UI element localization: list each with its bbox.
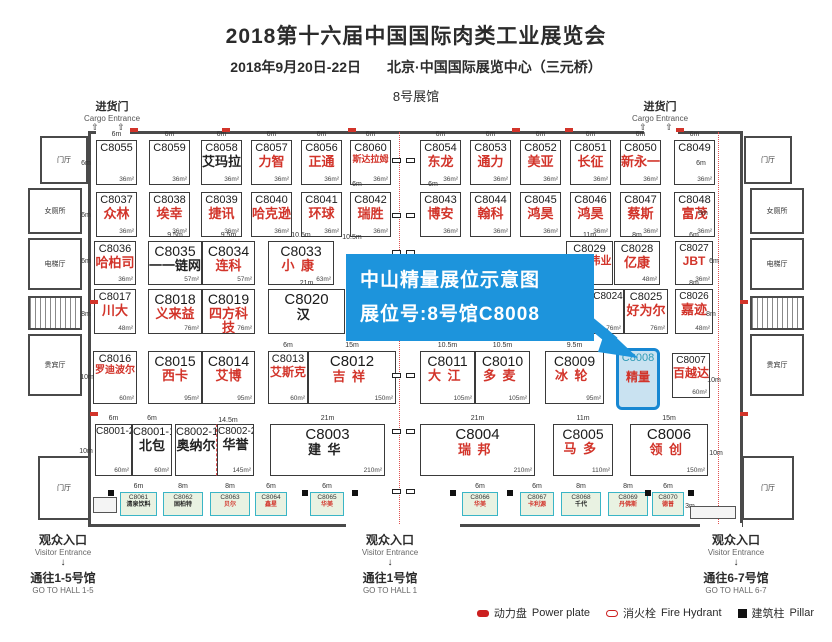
booth-name: 斯达拉姆 (351, 155, 390, 164)
legend-label-cn: 建筑柱 (752, 605, 785, 621)
cargo-entrance: 进货门Cargo Entrance⇧ ⇧ (605, 98, 715, 132)
dimension-label: 6m (475, 483, 485, 490)
booth-area: 60m² (692, 389, 707, 396)
booth-id: C8050 (621, 141, 660, 155)
dimension-label: 15m (345, 342, 359, 349)
booth-id: C8019 (203, 290, 254, 307)
booth-C8005: C8005马多110m² (553, 424, 613, 476)
expansion-joint-line (718, 132, 719, 524)
booth-area: 36m² (373, 176, 388, 183)
booth-id: C8027 (676, 242, 712, 255)
booth-name: 固柏特 (164, 502, 202, 509)
booth-name: 埃幸 (150, 207, 189, 221)
booth-id: C8040 (252, 193, 291, 207)
booth-name: 华美 (463, 502, 497, 509)
room: 门厅 (38, 456, 90, 520)
room: 女厕所 (750, 188, 804, 234)
room: 女厕所 (28, 188, 82, 234)
exit-destination-en: GO TO HALL 6-7 (676, 586, 796, 595)
booth-area: 36m² (274, 228, 289, 235)
booth-id: C8066 (463, 493, 497, 502)
booth-area: 63m² (316, 276, 331, 283)
utility-room (690, 506, 736, 519)
visitor-entrance-label-cn: 观众入口 (676, 531, 796, 548)
dimension-label: 6m (283, 342, 293, 349)
booth-area: 36m² (172, 176, 187, 183)
booth-C8046: C8046鸿昊36m² (570, 192, 611, 237)
dimension-label: 8m (576, 483, 586, 490)
dimension-label: 6m (134, 483, 144, 490)
room: 电梯厅 (750, 238, 804, 290)
booth-name: 小康 (269, 259, 333, 273)
booth-id: C8068 (562, 493, 600, 502)
booth-name: 大江 (421, 369, 474, 383)
visitor-entrance-label-en: Visitor Entrance (330, 548, 450, 557)
pillar-icon (406, 158, 415, 163)
room-label: 电梯厅 (767, 259, 788, 269)
booth-id: C8003 (271, 425, 384, 443)
visitor-entrance-label-en: Visitor Entrance (3, 548, 123, 557)
booth-id: C8041 (302, 193, 341, 207)
visitor-entrance-label-cn: 观众入口 (3, 531, 123, 548)
booth-name: 美亚 (521, 155, 560, 169)
booth-C8068: C8068千代 (561, 492, 601, 516)
booth-C8059: C805936m² (149, 140, 190, 185)
room-label: 门厅 (57, 155, 71, 165)
cargo-entrance-label-cn: 进货门 (57, 98, 167, 114)
fire-hydrant-icon (606, 610, 618, 617)
booth-C8047: C8047蔡斯36m² (620, 192, 661, 237)
room: 门厅 (742, 456, 794, 520)
dimension-label: 9.5m (167, 232, 183, 239)
booth-id: C8010 (476, 352, 529, 369)
booth-C8064: C8064鑫星 (255, 492, 287, 516)
booth-id: C8014 (203, 352, 254, 369)
booth-area: 95m² (586, 395, 601, 402)
booth-name: 蔡斯 (621, 207, 660, 221)
booth-id: C8042 (351, 193, 390, 207)
pillar-icon (738, 609, 747, 618)
booth-C8028: C8028亿康48m² (614, 241, 660, 285)
pillar-icon (507, 490, 513, 496)
booth-id: C8005 (554, 425, 612, 442)
dimension-label: 6m (322, 483, 332, 490)
booth-area: 36m² (274, 176, 289, 183)
booth-C8006: C8006领创150m² (630, 424, 708, 476)
pillar-icon (406, 489, 415, 494)
booth-name: 哈柏司 (95, 256, 135, 270)
pillar-icon (450, 490, 456, 496)
dimension-label: 6m (352, 181, 362, 188)
booth-name: 艾斯克 (269, 366, 307, 379)
dimension-label: 6m (428, 181, 438, 188)
callout-line1: 中山精量展位示意图 (360, 264, 594, 297)
booth-area: 36m² (643, 176, 658, 183)
booth-C8048: C8048富茂36m² (674, 192, 715, 237)
booth-id: C8051 (571, 141, 610, 155)
down-arrow-icon: ↓ (3, 557, 123, 568)
dimension-label: 6m (81, 258, 91, 265)
booth-area: 60m² (154, 467, 169, 474)
dimension-label: 10m (707, 377, 721, 384)
booth-id: C8059 (150, 141, 189, 155)
booth-name: 鑫星 (256, 502, 286, 509)
legend-item: 消火栓Fire Hydrant (606, 605, 722, 621)
dimension-label: 6m (81, 212, 91, 219)
booth-name: 鸿昊 (571, 207, 610, 221)
booth-id: C8035 (149, 242, 201, 259)
dimension-label: 6m (663, 483, 673, 490)
booth-id: C8037 (97, 193, 136, 207)
booth-area: 60m² (114, 467, 129, 474)
power-plate-icon (740, 412, 748, 416)
booth-name: 长征 (571, 155, 610, 169)
pillar-icon (392, 429, 401, 434)
booth-area: 145m² (233, 467, 251, 474)
booth-area: 36m² (373, 228, 388, 235)
booth-id: C8049 (675, 141, 714, 155)
pillar-icon (302, 490, 308, 496)
power-plate-icon (477, 610, 489, 617)
dimension-label: 6m (436, 131, 446, 138)
booth-area: 36m² (543, 228, 558, 235)
booth-id: C8046 (571, 193, 610, 207)
room-label: 电梯厅 (45, 259, 66, 269)
booth-name: 丹佛斯 (609, 502, 647, 509)
booth-C8033: C8033小康63m² (268, 241, 334, 285)
booth-id: C8011 (421, 352, 474, 369)
booth-id: C8012 (309, 352, 395, 370)
booth-id: C8017 (95, 290, 135, 304)
booth-C8014: C8014艾博95m² (202, 351, 255, 404)
door-arrows-icon: ⇧ ⇧ (57, 123, 167, 132)
visitor-exit: 观众入口Visitor Entrance↓通往6-7号馆GO TO HALL 6… (676, 531, 796, 595)
booth-area: 210m² (514, 467, 532, 474)
room: 贵宾厅 (28, 334, 82, 396)
booth-area: 105m² (454, 395, 472, 402)
booth-area: 36m² (543, 176, 558, 183)
booth-id: C8044 (471, 193, 510, 207)
down-arrow-icon: ↓ (676, 557, 796, 568)
booth-C8060: C8060斯达拉姆36m² (350, 140, 391, 185)
dimension-label: 6m (266, 483, 276, 490)
booth-id: C8069 (609, 493, 647, 502)
booth-area: 95m² (237, 395, 252, 402)
pillar-icon (392, 489, 401, 494)
booth-name: 千代 (562, 502, 600, 509)
booth-name: 贝尔 (211, 502, 249, 509)
booth-area: 60m² (119, 395, 134, 402)
booth-id: C8047 (621, 193, 660, 207)
booth-name: 德普 (653, 502, 683, 509)
pillar-icon (108, 490, 114, 496)
room: 门厅 (744, 136, 792, 184)
legend-item: 动力盘Power plate (477, 605, 590, 621)
booth-id: C8002-2 (218, 425, 253, 438)
pillar-icon (645, 490, 651, 496)
booth-C8054: C8054东龙36m² (420, 140, 461, 185)
booth-id: C8062 (164, 493, 202, 502)
booth-area: 76m² (237, 325, 252, 332)
stairs-room (28, 296, 82, 330)
map-legend: 动力盘Power plate消火栓Fire Hydrant建筑柱Pillar (477, 605, 814, 621)
booth-id: C8039 (202, 193, 241, 207)
booth-C8069: C8069丹佛斯 (608, 492, 648, 516)
stairs-room (750, 296, 804, 330)
booth-name: 众林 (97, 207, 136, 221)
booth-id: C8002-1 (176, 425, 216, 439)
booth-name: 卡利源 (521, 502, 553, 509)
booth-C8017: C8017川大48m² (94, 289, 136, 334)
pillar-icon (392, 373, 401, 378)
event-date: 2018年9月20日-22日 (230, 59, 361, 75)
booth-area: 36m² (593, 176, 608, 183)
booth-C8065: C8065华美 (310, 492, 344, 516)
booth-area: 36m² (493, 228, 508, 235)
booth-C8002-2: C8002-2华誉145m² (217, 424, 254, 476)
visitor-entrance-label-cn: 观众入口 (330, 531, 450, 548)
pillar-icon (392, 158, 401, 163)
room: 电梯厅 (28, 238, 82, 290)
booth-id: C8048 (675, 193, 714, 207)
booth-C8004: C8004瑞邦210m² (420, 424, 535, 476)
booth-name: 瑞邦 (421, 443, 534, 457)
booth-id: C8001-2 (96, 425, 131, 438)
booth-id: C8045 (521, 193, 560, 207)
exit-destination-cn: 通往1-5号馆 (3, 569, 123, 586)
booth-C8050: C8050新永一36m² (620, 140, 661, 185)
visitor-exit: 观众入口Visitor Entrance↓通往1-5号馆GO TO HALL 1… (3, 531, 123, 595)
booth-C8013: C8013艾斯克60m² (268, 351, 308, 404)
room-label: 门厅 (761, 155, 775, 165)
booth-area: 48m² (695, 325, 710, 332)
dimension-label: 8m (178, 483, 188, 490)
booth-id: C8064 (256, 493, 286, 502)
booth-area: 36m² (324, 176, 339, 183)
booth-id: C8061 (121, 493, 156, 502)
door-arrows-icon: ⇧ ⇧ (605, 123, 715, 132)
dimension-label: 6m (267, 131, 277, 138)
booth-C8003: C8003建华210m² (270, 424, 385, 476)
booth-name: 艾玛拉 (202, 155, 241, 169)
room-label: 贵宾厅 (767, 360, 788, 370)
dimension-label: 6m (586, 131, 596, 138)
legend-label-cn: 动力盘 (494, 605, 527, 621)
booth-name: 捷讯 (202, 207, 241, 221)
booth-area: 57m² (184, 276, 199, 283)
booth-id: C8001-1 (133, 425, 171, 439)
booth-name: 东龙 (421, 155, 460, 169)
dimension-label: 6m (147, 415, 157, 422)
booth-name: 艾博 (203, 369, 254, 383)
legend-item: 建筑柱Pillar (738, 605, 814, 621)
booth-id: C8063 (211, 493, 249, 502)
floor-plan-page: 2018第十六届中国国际肉类工业展览会 2018年9月20日-22日北京·中国国… (0, 0, 832, 642)
booth-name: 通力 (471, 155, 510, 169)
booth-area: 57m² (237, 276, 252, 283)
dimension-label: 10.5m (493, 342, 512, 349)
down-arrow-icon: ↓ (330, 557, 450, 568)
visitor-exit: 观众入口Visitor Entrance↓通往1号馆GO TO HALL 1 (330, 531, 450, 595)
dimension-label: 6m (366, 131, 376, 138)
booth-C8045: C8045鸿昊36m² (520, 192, 561, 237)
booth-area: 95m² (184, 395, 199, 402)
booth-C8067: C8067卡利源 (520, 492, 554, 516)
booth-id: C8013 (269, 352, 307, 366)
booth-area: 36m² (643, 228, 658, 235)
dimension-label: 6m (486, 131, 496, 138)
dimension-label: 6m (536, 131, 546, 138)
exit-destination-cn: 通往1号馆 (330, 569, 450, 586)
dimension-label: 11m (576, 415, 589, 422)
booth-C8018: C8018义来益76m² (148, 289, 202, 334)
dimension-label: 6m (81, 160, 91, 167)
room-label: 贵宾厅 (45, 360, 66, 370)
booth-C8019: C8019四方科技76m² (202, 289, 255, 334)
booth-area: 105m² (509, 395, 527, 402)
booth-C8055: C805536m² (96, 140, 137, 185)
pillar-icon (688, 490, 694, 496)
booth-name: 吉祥 (309, 370, 395, 384)
legend-label-en: Fire Hydrant (661, 607, 722, 619)
dimension-label: 15m (662, 415, 676, 422)
dimension-label: 10.5m (438, 342, 457, 349)
booth-area: 36m² (118, 276, 133, 283)
booth-name: 环球 (302, 207, 341, 221)
exit-destination-cn: 通往6-7号馆 (676, 569, 796, 586)
dimension-label: 6m (165, 131, 175, 138)
booth-name: 罗迪波尔 (94, 366, 136, 377)
booth-C8061: C8061清泉饮料 (120, 492, 157, 516)
booth-id: C8015 (149, 352, 201, 369)
dimension-label: 8m (706, 311, 716, 318)
page-subtitle: 2018年9月20日-22日北京·中国国际展览中心（三元桥） (0, 57, 832, 77)
power-plate-icon (90, 412, 98, 416)
booth-name: 川大 (95, 304, 135, 318)
booth-name: 正通 (302, 155, 341, 169)
room-label: 门厅 (761, 483, 775, 493)
booth-name: 华美 (311, 502, 343, 509)
booth-C8036: C8036哈柏司36m² (94, 241, 136, 285)
booth-name: 马多 (554, 442, 612, 456)
booth-C8058: C8058艾玛拉36m² (201, 140, 242, 185)
dimension-label: 10m (79, 448, 93, 455)
room-label: 女厕所 (45, 206, 66, 216)
dimension-label: 8m (623, 483, 633, 490)
booth-id: C8052 (521, 141, 560, 155)
booth-name: 富茂 (675, 207, 714, 221)
booth-C8063: C8063贝尔 (210, 492, 250, 516)
room-label: 女厕所 (767, 206, 788, 216)
booth-id: C8020 (269, 290, 344, 308)
booth-C8057: C8057力智36m² (251, 140, 292, 185)
booth-id: C8036 (95, 242, 135, 256)
exit-destination-en: GO TO HALL 1 (330, 586, 450, 595)
booth-id: C8033 (269, 242, 333, 259)
booth-C8012: C8012吉祥150m² (308, 351, 396, 404)
booth-name: 多麦 (476, 369, 529, 383)
booth-name: 汉 (269, 308, 344, 322)
booth-area: 48m² (118, 325, 133, 332)
booth-C8052: C8052美亚36m² (520, 140, 561, 185)
room: 贵宾厅 (750, 334, 804, 396)
booth-area: 36m² (493, 176, 508, 183)
dimension-label: 21m (471, 415, 485, 422)
booth-area: 150m² (687, 467, 705, 474)
booth-name: 博安 (421, 207, 460, 221)
power-plate-icon (348, 128, 356, 132)
booth-name: 西卡 (149, 369, 201, 383)
highlight-callout: 中山精量展位示意图 展位号:8号馆C8008 (346, 254, 594, 341)
power-plate-icon (90, 300, 98, 304)
dimension-label: 8m (632, 232, 642, 239)
booth-id: C8028 (615, 242, 659, 256)
exit-destination-en: GO TO HALL 1-5 (3, 586, 123, 595)
booth-id: C8055 (97, 141, 136, 155)
dimension-label: 10.5m (291, 232, 310, 239)
booth-C8070: C8070德普 (652, 492, 684, 516)
pillar-icon (392, 213, 401, 218)
booth-C8034: C8034连科57m² (202, 241, 255, 285)
booth-C8040: C8040哈克逊36m² (251, 192, 292, 237)
booth-C8011: C8011大江105m² (420, 351, 475, 404)
booth-name: 瑞胜 (351, 207, 390, 221)
legend-label-en: Pillar (790, 607, 814, 619)
booth-id: C8004 (421, 425, 534, 443)
booth-id: C8053 (471, 141, 510, 155)
booth-name: 百越达 (673, 367, 709, 380)
dimension-label: 10.5m (342, 234, 361, 241)
booth-C8039: C8039捷讯36m² (201, 192, 242, 237)
booth-C8062: C8062固柏特 (163, 492, 203, 516)
booth-C8010: C8010多麦105m² (475, 351, 530, 404)
dimension-label: 6m (112, 131, 122, 138)
booth-id: C8007 (673, 354, 709, 367)
dimension-label: 6m (698, 210, 708, 217)
dimension-label: 6m (689, 232, 699, 239)
booth-area: 36m² (224, 176, 239, 183)
pillar-icon (406, 213, 415, 218)
booth-name: 义来益 (149, 307, 201, 321)
booth-name: JBT (676, 255, 712, 268)
booth-C8053: C8053通力36m² (470, 140, 511, 185)
pillar-icon (406, 373, 415, 378)
dimension-label: 8m (225, 483, 235, 490)
page-title: 2018第十六届中国国际肉类工业展览会 (0, 20, 832, 50)
booth-C8038: C8038埃幸36m² (149, 192, 190, 237)
booth-name: 鸿昊 (521, 207, 560, 221)
booth-id: C8056 (302, 141, 341, 155)
dimension-label: 21m (300, 280, 314, 287)
pillar-icon (406, 429, 415, 434)
utility-room (93, 497, 117, 513)
booth-id: C8070 (653, 493, 683, 502)
booth-area: 110m² (592, 467, 610, 474)
dimension-label: 6m (317, 131, 327, 138)
booth-C8043: C8043博安36m² (420, 192, 461, 237)
booth-name: 亿康 (615, 256, 659, 270)
booth-name: 建华 (271, 443, 384, 457)
booth-name: 奥纳尔 (176, 439, 216, 453)
pillar-icon (352, 490, 358, 496)
booth-C8066: C8066华美 (462, 492, 498, 516)
booth-C8051: C8051长征36m² (570, 140, 611, 185)
booth-C8001-1: C8001-1北包60m² (132, 424, 172, 476)
room-label: 门厅 (57, 483, 71, 493)
booth-area: 36m² (324, 228, 339, 235)
dimension-label: 6m (109, 415, 119, 422)
booth-area: 210m² (364, 467, 382, 474)
